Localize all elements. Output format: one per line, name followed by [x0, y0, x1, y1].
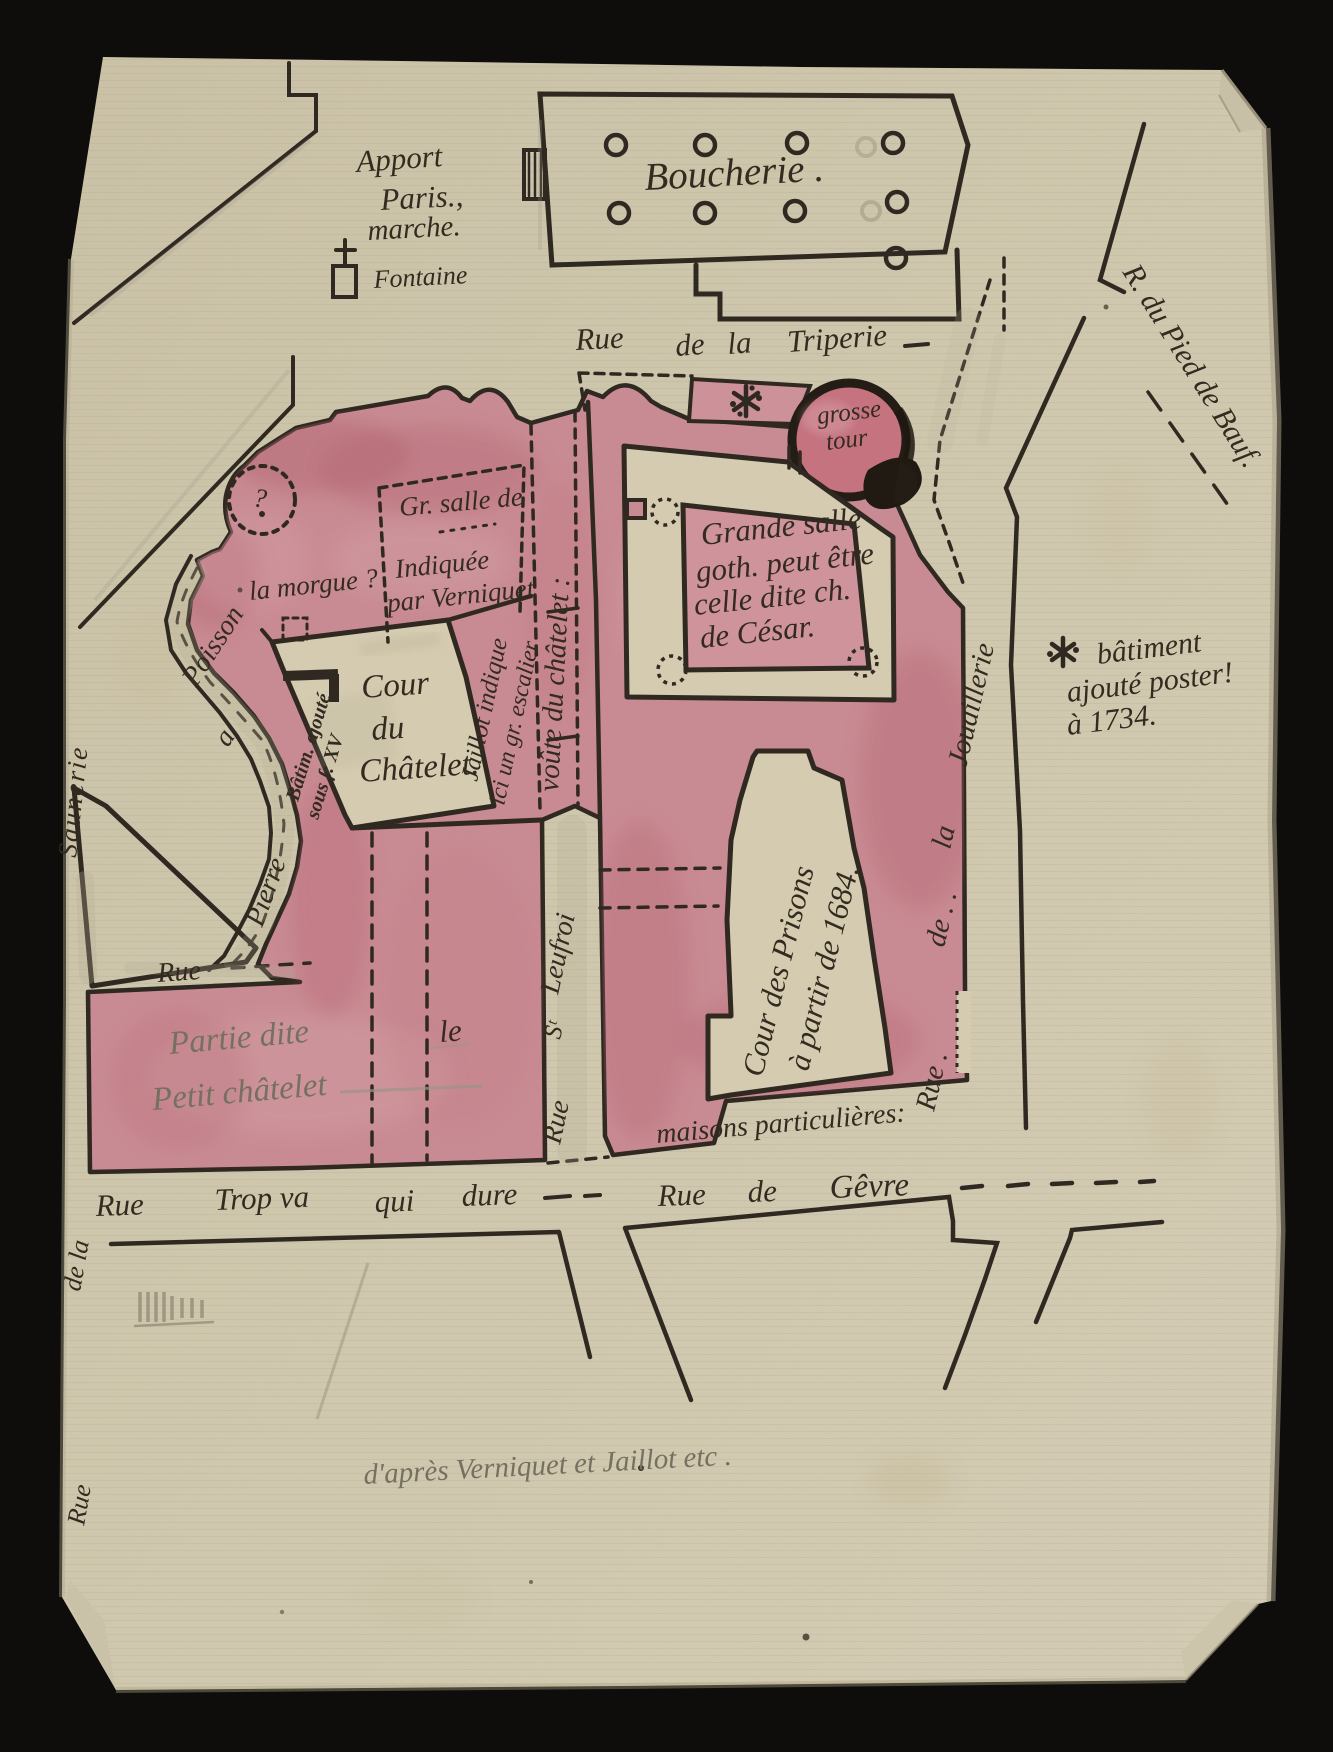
svg-text:de: de — [747, 1173, 778, 1209]
svg-text:tour: tour — [824, 424, 869, 456]
svg-text:Gêvre: Gêvre — [829, 1167, 910, 1206]
svg-text:Triperie: Triperie — [786, 317, 888, 359]
svg-text:qui: qui — [374, 1183, 415, 1219]
svg-text:Rue: Rue — [155, 955, 202, 989]
svg-text:Rue: Rue — [94, 1186, 145, 1223]
svg-text:du: du — [370, 710, 405, 748]
svg-text:Rue: Rue — [574, 320, 625, 358]
svg-text:le: le — [438, 1012, 463, 1048]
svg-text:Fontaine: Fontaine — [372, 260, 468, 294]
svg-text:de: de — [674, 326, 706, 363]
svg-text:Apport: Apport — [353, 138, 445, 179]
svg-text:marche.: marche. — [367, 210, 462, 247]
svg-text:Trop va: Trop va — [214, 1179, 310, 1217]
svg-text:Cour: Cour — [360, 665, 430, 706]
svg-text:Rue: Rue — [656, 1176, 707, 1213]
svg-text:dure: dure — [461, 1176, 518, 1213]
svg-text:la: la — [726, 324, 753, 361]
